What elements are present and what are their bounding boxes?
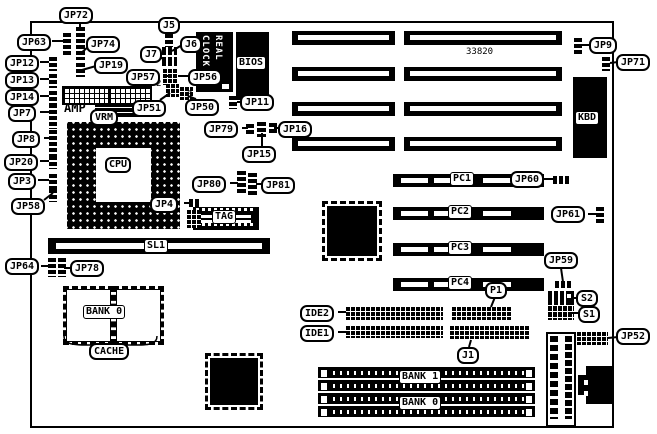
label-sl1: SL1 [144,239,168,253]
callout-jp56: JP56 [188,69,222,86]
callout-p1: P1 [485,282,507,299]
jumper-header-36 [577,332,608,345]
callout-jp81: JP81 [261,177,295,194]
isa-slot-3-left [292,102,395,116]
jumper-header-21 [237,171,246,195]
jumper-header-15 [166,84,179,97]
callout-jp51: JP51 [132,100,166,117]
label-pc3: PC3 [448,241,472,255]
callout-jp8: JP8 [12,131,40,148]
label-pc1: PC1 [450,172,474,186]
callout-jp63: JP63 [17,34,51,51]
callout-s2: S2 [576,290,598,307]
isa-slot-3-right [404,102,562,116]
power-connector-pins-right [565,336,572,419]
jumper-header-22 [248,173,257,197]
jumper-header-28 [596,207,604,224]
callout-jp79: JP79 [204,121,238,138]
jumper-header-13 [162,57,177,66]
rtc-text-line1: REAL [213,35,223,61]
text-amp: AMP [64,101,86,115]
keyboard-din-connector [586,366,612,404]
jumper-header-26 [602,57,610,71]
jumper-header-18 [246,124,254,135]
label-cpu: CPU [105,157,131,173]
callout-jp3: JP3 [8,173,36,190]
isa-slot-4-right [404,137,562,151]
jumper-header-6 [49,104,57,129]
label-pc4: PC4 [448,276,472,290]
jumper-header-8 [49,156,57,169]
jumper-header-1 [76,63,85,77]
callout-jp80: JP80 [192,176,226,193]
callout-jp58: JP58 [11,198,45,215]
jumper-header-32 [346,307,443,320]
jumper-header-30 [48,258,56,277]
callout-jp11: JP11 [240,94,274,111]
callout-cache: CACHE [89,343,129,360]
callout-jp72: JP72 [59,7,93,24]
jumper-header-7 [49,130,57,156]
label-bank1-simm: BANK 1 [399,370,441,384]
din-notch-2 [584,391,588,396]
callout-ide1: IDE1 [300,325,334,342]
jumper-header-23 [189,199,200,207]
label-tag: TAG [212,210,236,224]
rtc-notch [222,84,229,89]
jumper-header-34 [452,307,512,320]
power-connector [546,332,576,427]
label-bank0-simm: BANK 0 [399,396,441,410]
callout-j1: J1 [457,347,479,364]
callout-s1: S1 [578,306,600,323]
callout-jp15: JP15 [242,146,276,163]
callout-jp52: JP52 [616,328,650,345]
isa-slot-4-left [292,137,395,151]
jumper-header-31 [58,258,66,277]
callout-jp20: JP20 [4,154,38,171]
jumper-header-20 [269,123,277,134]
callout-vrm: VRM [90,109,118,126]
power-connector-pins-left [550,336,558,419]
callout-jp12: JP12 [5,55,39,72]
isa-slot-2-right [404,67,562,81]
jumper-header-24 [187,210,201,228]
callout-jp71: JP71 [616,54,650,71]
jumper-header-14 [163,69,178,85]
label-bios: BIOS [236,56,266,70]
callout-jp50: JP50 [185,99,219,116]
jumper-header-3 [49,57,57,71]
callout-jp13: JP13 [5,72,39,89]
callout-jp61: JP61 [551,206,585,223]
callout-j6: J6 [180,36,202,53]
isa-slot-2-left [292,67,395,81]
label-pc2: PC2 [448,205,472,219]
jumper-header-35 [450,326,530,339]
jumper-header-10 [49,189,57,202]
dip-switch-s1 [548,306,574,320]
jumper-header-9 [49,174,57,189]
isa-slot-1-right [404,31,562,45]
jumper-header-2 [63,33,71,55]
callout-jp78: JP78 [70,260,104,277]
jumper-header-4 [49,74,57,88]
jumper-header-17 [229,96,237,109]
callout-jp7: JP7 [8,105,36,122]
label-kbd: KBD [575,111,599,125]
isa-slot-1-left [292,31,395,45]
callout-jp60: JP60 [510,171,544,188]
jumper-header-25 [574,38,582,54]
callout-ide2: IDE2 [300,305,334,322]
callout-jp4: JP4 [150,196,178,213]
label-bank0-cache: BANK 0 [83,305,125,319]
jumper-header-33 [346,326,443,338]
jumper-header-12 [162,47,177,55]
jumper-header-19 [257,122,266,137]
callout-jp9: JP9 [589,37,617,54]
jumper-header-11 [165,34,173,47]
text-chip-33820: 33820 [466,47,493,57]
jumper-header-29 [555,281,573,288]
callout-jp64: JP64 [5,258,39,275]
callout-jp16: JP16 [278,121,312,138]
din-notch-1 [584,380,588,385]
chipset-qfp-chip [327,206,377,256]
jumper-header-0 [76,27,85,60]
jumper-header-27 [553,176,571,184]
dip-switch-s2 [548,291,574,305]
motherboard-diagram: REAL CLOCK JP72JP63JP12JP13JP14JP7JP8JP2… [0,0,657,434]
callout-j7: J7 [140,46,162,63]
callout-jp19: JP19 [94,57,128,74]
io-qfp-chip [210,358,258,405]
callout-jp14: JP14 [5,89,39,106]
callout-j5: J5 [158,17,180,34]
callout-jp74: JP74 [86,36,120,53]
callout-jp57: JP57 [126,69,160,86]
callout-jp59: JP59 [544,252,578,269]
